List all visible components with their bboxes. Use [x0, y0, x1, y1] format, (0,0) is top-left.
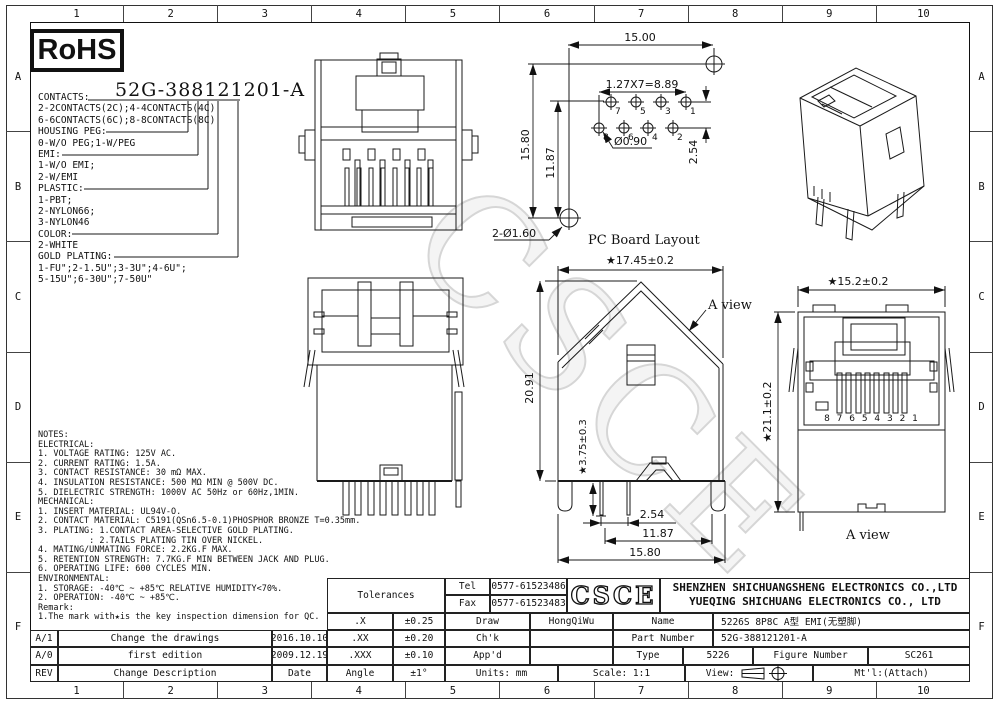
approved-label: App'd: [445, 647, 530, 664]
legend-line: PLASTIC:: [38, 183, 298, 194]
pin-number: 4: [652, 133, 658, 143]
legend-line: 5-15U";6-30U";7-50U": [38, 274, 298, 285]
rev-description: first edition: [58, 647, 272, 664]
dim-mount-holes: 2-Ø1.60: [492, 227, 536, 240]
legend-line: 1-FU";2-1.5U";3-3U";4-6U";: [38, 263, 298, 274]
legend-line: EMI:: [38, 149, 298, 160]
dim-height: ★21.1±0.2: [761, 381, 774, 442]
type-value: 5226: [683, 647, 753, 664]
pcb-layout-drawing: 15.00 1.27X7=8.89 15.80 11.87 Ø0.90 2.54…: [492, 31, 725, 248]
tol-label: .X: [327, 613, 393, 630]
pin-number: 5: [640, 107, 646, 117]
legend-line: 3-NYLON46: [38, 217, 298, 228]
top-view-drawing: [299, 53, 478, 230]
part-number-label: Part Number: [613, 630, 713, 647]
dim-pin-length: ★3.75±0.3: [578, 419, 589, 475]
pin-number: 2: [677, 133, 683, 143]
dim-pin-pitch: 2.54: [640, 508, 665, 521]
drawing-sheet: CSCE 1 2 3 4 5 6 7 8 9 10 1 2 3 4 5 6 7 …: [0, 0, 999, 705]
rev-header-rev: REV: [30, 665, 58, 682]
draw-value: HongQiWu: [530, 613, 613, 630]
tol-label: Angle: [327, 665, 393, 682]
legend-line: 1-PBT;: [38, 195, 298, 206]
tel-value: 0577-61523486: [490, 578, 567, 595]
pin-number: 1: [690, 107, 696, 117]
part-number-value: 52G-388121201-A: [713, 630, 970, 647]
tol-value: ±0.10: [393, 647, 445, 664]
dim-width: ★17.45±0.2: [606, 254, 674, 267]
company-logo: CSCE: [567, 578, 660, 613]
company-name: SHENZHEN SHICHUANGSHENG ELECTRONICS CO.,…: [660, 578, 970, 613]
name-value: 5226S 8P8C A型 EMI(无塑脚): [713, 613, 970, 630]
legend-line: 0-W/O PEG;1-W/PEG: [38, 138, 298, 149]
legend-line: COLOR:: [38, 229, 298, 240]
figure-number-value: SC261: [868, 647, 970, 664]
dim-11-87: 11.87: [544, 147, 557, 179]
tol-value: ±0.25: [393, 613, 445, 630]
dim-span: 11.87: [642, 527, 674, 540]
pin-number: 7: [615, 107, 621, 117]
a-view-callout: A view: [707, 298, 752, 313]
fax-label: Fax: [445, 595, 490, 612]
tol-value: ±1°: [393, 665, 445, 682]
legend-line: 2-2CONTACTS(2C);4-4CONTACTS(4C): [38, 103, 298, 114]
dim-15-80: 15.80: [519, 129, 532, 161]
pin-numbers-row: 8 7 6 5 4 3 2 1: [824, 414, 920, 424]
tol-label: .XX: [327, 630, 393, 647]
dim-15-00: 15.00: [624, 31, 656, 44]
company-line-1: SHENZHEN SHICHUANGSHENG ELECTRONICS CO.,…: [673, 581, 958, 595]
dim-rowgap: 2.54: [687, 140, 700, 165]
pin-number: 8: [603, 133, 609, 143]
rev-id: A/1: [30, 630, 58, 647]
check-value: [530, 630, 613, 647]
legend-line: GOLD PLATING:: [38, 251, 298, 262]
a-view-label: A view: [845, 528, 890, 543]
draw-label: Draw: [445, 613, 530, 630]
tel-label: Tel: [445, 578, 490, 595]
rev-header-description: Change Description: [58, 665, 272, 682]
legend-line: CONTACTS:: [38, 92, 298, 103]
view-projection: View:: [685, 665, 813, 682]
legend-line: 2-NYLON66;: [38, 206, 298, 217]
dim-width: ★15.2±0.2: [827, 275, 888, 288]
third-angle-projection-icon: [740, 666, 792, 681]
rev-description: Change the drawings: [58, 630, 272, 647]
company-line-2: YUEQING SHICHUANG ELECTRONICS CO., LTD: [689, 595, 941, 609]
pin-number: 6: [628, 133, 634, 143]
dim-base: 15.80: [629, 546, 661, 559]
rev-date: 2009.12.19: [272, 647, 327, 664]
rev-date: 2016.10.10: [272, 630, 327, 647]
check-label: Ch'k: [445, 630, 530, 647]
tol-value: ±0.20: [393, 630, 445, 647]
tol-label: .XXX: [327, 647, 393, 664]
approved-value: [530, 647, 613, 664]
title-block: A/1 Change the drawings 2016.10.10 A/0 f…: [30, 578, 970, 682]
fax-value: 0577-61523483: [490, 595, 567, 612]
ordering-code-legend: CONTACTS: 2-2CONTACTS(2C);4-4CONTACTS(4C…: [38, 92, 298, 286]
scale: Scale: 1:1: [558, 665, 685, 682]
figure-number-label: Figure Number: [753, 647, 868, 664]
dim-pitch: 1.27X7=8.89: [606, 78, 679, 91]
material: Mt'l:(Attach): [813, 665, 970, 682]
rev-header-date: Date: [272, 665, 327, 682]
legend-line: 1-W/O EMI;: [38, 160, 298, 171]
units: Units: mm: [445, 665, 558, 682]
rohs-mark: RoHS: [30, 29, 124, 72]
view-label: View:: [706, 668, 735, 679]
pcb-layout-title: PC Board Layout: [588, 233, 701, 248]
dim-height: 20.91: [523, 372, 536, 404]
type-label: Type: [613, 647, 683, 664]
front-view-drawing: ★15.2±0.2 ★21.1±0.2 8 7 6 5 4 3 2 1 A vi…: [761, 275, 954, 543]
tolerances-header: Tolerances: [327, 578, 445, 613]
isometric-view-drawing: [800, 68, 924, 240]
legend-line: 2-WHITE: [38, 240, 298, 251]
legend-line: HOUSING PEG:: [38, 126, 298, 137]
rev-id: A/0: [30, 647, 58, 664]
name-label: Name: [613, 613, 713, 630]
bottom-view-drawing: ★17.45±0.2 20.91 ★3.75±0.3 2.54 11.87 15…: [523, 254, 752, 563]
legend-line: 6-6CONTACTS(6C);8-8CONTACTS(8C): [38, 115, 298, 126]
legend-line: 2-W/EMI: [38, 172, 298, 183]
pin-number: 3: [665, 107, 671, 117]
